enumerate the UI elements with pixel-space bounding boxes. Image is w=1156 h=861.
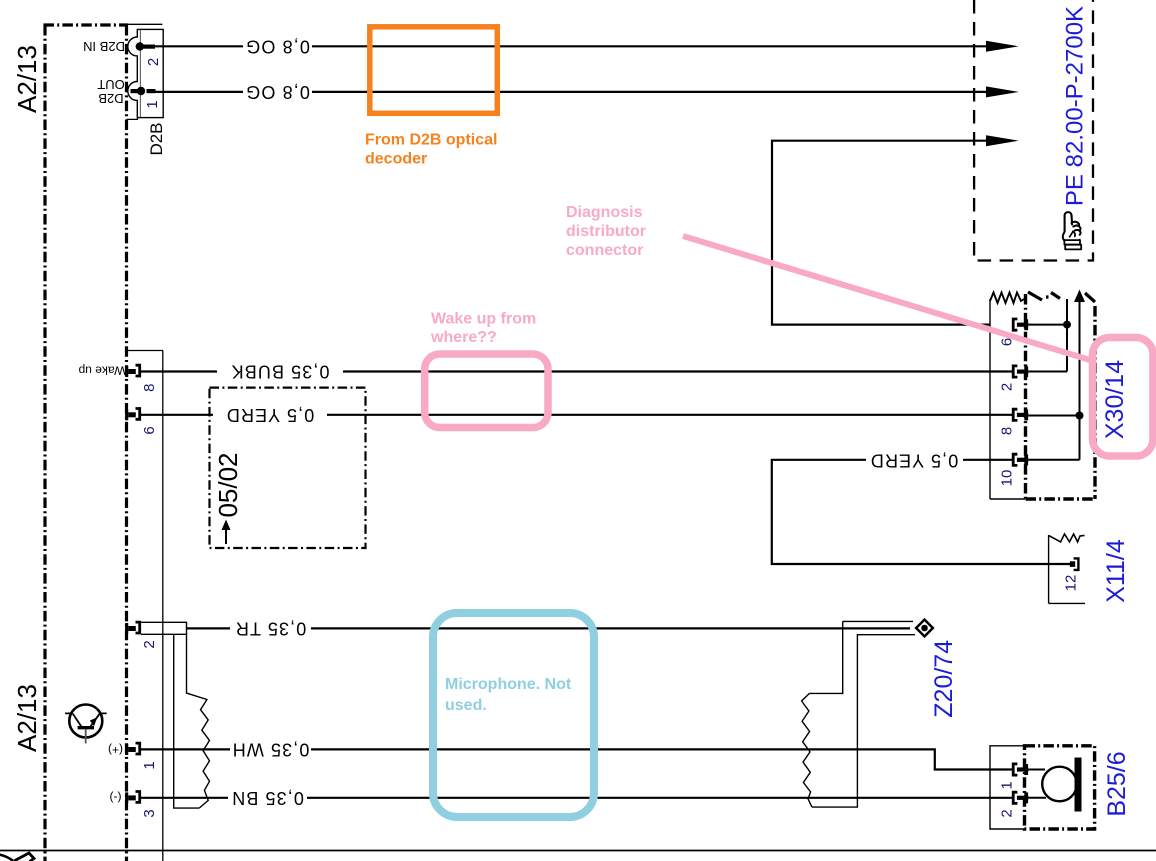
svg-text:1: 1: [144, 100, 161, 108]
svg-text:where??: where??: [430, 329, 497, 346]
svg-text:2: 2: [999, 383, 1016, 391]
svg-text:0,5 YERD: 0,5 YERD: [870, 450, 959, 470]
svg-text:0,5 YERD: 0,5 YERD: [226, 405, 315, 425]
svg-text:05/02: 05/02: [213, 452, 243, 517]
svg-text:2: 2: [145, 58, 162, 66]
svg-text:(-): (-): [110, 791, 122, 805]
svg-text:D2B: D2B: [98, 91, 123, 106]
svg-text:1: 1: [141, 761, 158, 769]
svg-text:6: 6: [141, 426, 158, 434]
svg-text:Diagnosis: Diagnosis: [566, 204, 643, 221]
svg-text:X11/4: X11/4: [1102, 539, 1130, 603]
svg-text:12: 12: [1063, 575, 1080, 592]
svg-text:From D2B optical: From D2B optical: [365, 132, 497, 149]
svg-text:(+): (+): [108, 743, 123, 757]
svg-text:Microphone. Not: Microphone. Not: [445, 676, 572, 693]
svg-text:8: 8: [141, 384, 158, 392]
svg-text:Z20/74: Z20/74: [930, 640, 958, 718]
svg-text:0,35 TR: 0,35 TR: [235, 618, 306, 638]
svg-text:3: 3: [141, 809, 158, 817]
svg-text:connector: connector: [566, 242, 643, 259]
svg-text:2: 2: [141, 640, 158, 648]
svg-text:Wake up: Wake up: [78, 364, 125, 378]
svg-text:2: 2: [999, 809, 1016, 817]
svg-text:decoder: decoder: [365, 151, 427, 168]
svg-text:D2B IN: D2B IN: [83, 39, 125, 54]
svg-text:0,35 BUBK: 0,35 BUBK: [231, 362, 330, 382]
svg-text:0,8 OG: 0,8 OG: [245, 82, 310, 102]
svg-text:Wake up from: Wake up from: [431, 311, 536, 328]
svg-text:PE 82.00-P-2700K: PE 82.00-P-2700K: [1062, 6, 1089, 206]
svg-text:X30/14: X30/14: [1101, 360, 1129, 439]
svg-text:B25/6: B25/6: [1103, 751, 1131, 816]
svg-text:8: 8: [999, 427, 1016, 435]
svg-text:0,8 OG: 0,8 OG: [245, 36, 310, 56]
svg-text:OUT: OUT: [97, 77, 125, 92]
svg-text:10: 10: [999, 470, 1016, 487]
svg-text:1: 1: [999, 781, 1016, 789]
svg-text:A2/13: A2/13: [12, 45, 42, 113]
svg-text:D2B: D2B: [147, 122, 166, 155]
svg-text:A2/13: A2/13: [12, 684, 42, 752]
svg-text:0,35 BN: 0,35 BN: [231, 788, 304, 808]
svg-text:0,35 WH: 0,35 WH: [232, 739, 310, 759]
svg-text:used.: used.: [445, 697, 487, 714]
svg-text:distributor: distributor: [566, 223, 646, 240]
